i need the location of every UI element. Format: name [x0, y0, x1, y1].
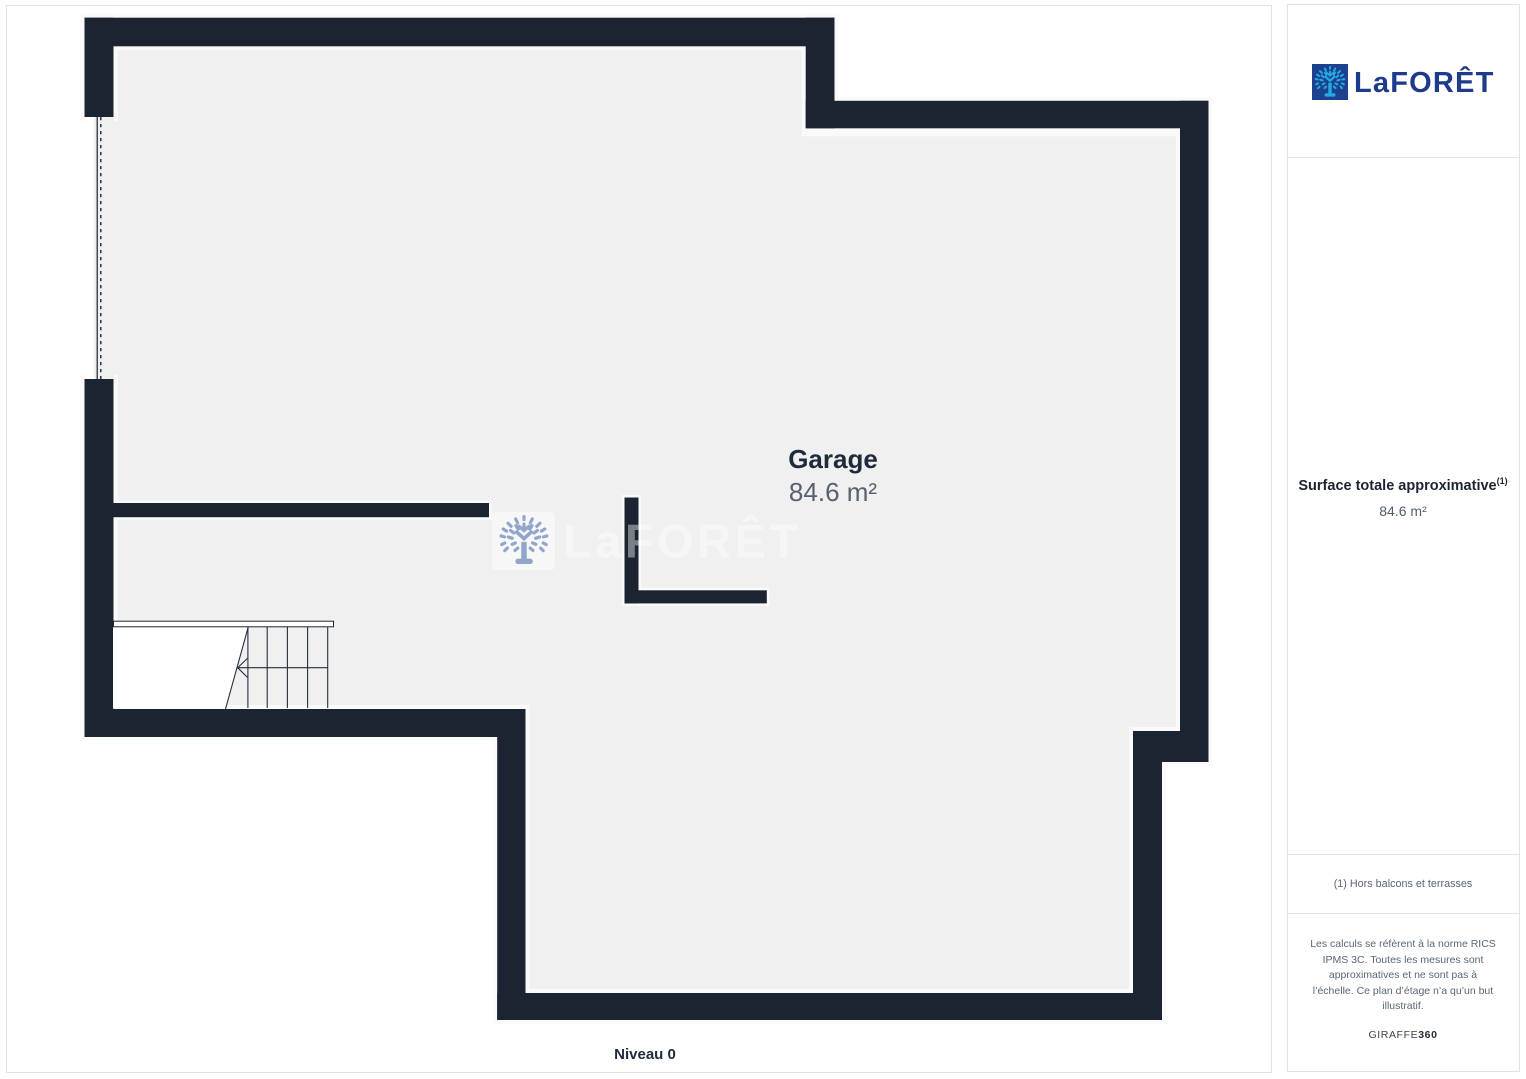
- svg-text:84.6 m²: 84.6 m²: [789, 477, 877, 507]
- svg-text:Garage: Garage: [788, 444, 878, 474]
- svg-text:LaFORÊT: LaFORÊT: [563, 515, 802, 568]
- svg-text:Niveau 0: Niveau 0: [614, 1046, 676, 1063]
